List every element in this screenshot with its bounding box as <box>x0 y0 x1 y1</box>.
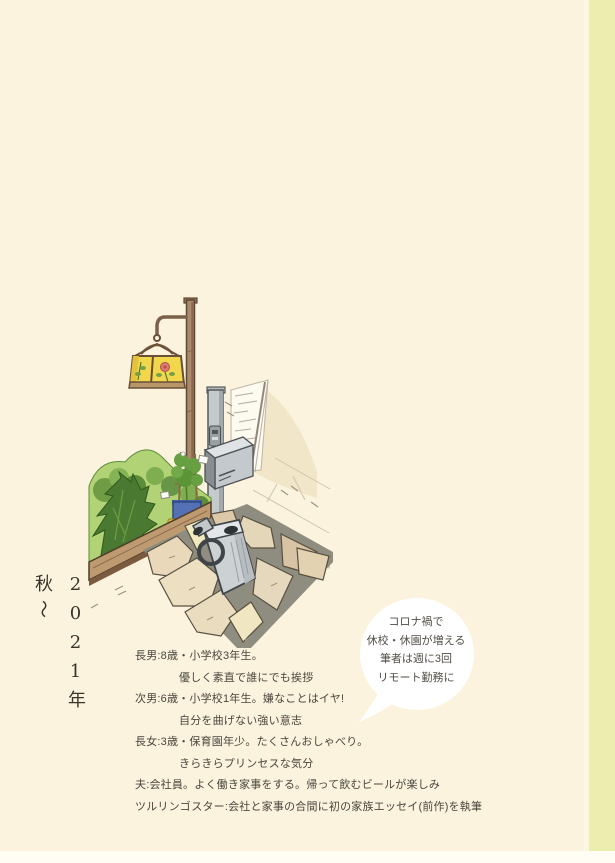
next-page-edge <box>589 0 615 851</box>
profile-line-daughter: 長女:3歳・保育園年少。たくさんおしゃべり。 <box>135 732 555 754</box>
page-bottom-edge <box>0 851 615 863</box>
profile-line-author: ツルリンゴスター:会社と家事の合間に初の家族エッセイ(前作)を執筆 <box>135 797 555 819</box>
profile-line-second-son-2: 自分を曲げない強い意志 <box>135 711 555 733</box>
profile-line-eldest-son-2: 優しく素直で誰にでも挨拶 <box>135 668 555 690</box>
chapter-date-text: 2021年 秋 <box>32 574 86 716</box>
book-page: 2021年 秋〜 コロナ禍で 休校・休園が増える 筆者は週に3回 リモート勤務に… <box>0 0 615 863</box>
stained-glass-lantern <box>129 344 185 388</box>
chapter-date-vertical-title: 2021年 秋〜 <box>56 574 88 794</box>
chapter-date-wave-dash: 〜 <box>32 600 53 626</box>
profile-line-eldest-son: 長男:8歳・小学校3年生。 <box>135 646 555 668</box>
profile-line-second-son: 次男:6歳・小学校1年生。嫌なことはイヤ! <box>135 689 555 711</box>
entrance-garden-illustration <box>85 290 340 652</box>
profile-line-husband: 夫:会社員。よく働き家事をする。帰って飲むビールが楽しみ <box>135 775 555 797</box>
family-profiles-block: 長男:8歳・小学校3年生。 優しく素直で誰にでも挨拶 次男:6歳・小学校1年生。… <box>135 646 555 818</box>
bubble-line: コロナ禍で <box>364 613 468 632</box>
profile-line-daughter-2: きらきらプリンセスな気分 <box>135 754 555 776</box>
